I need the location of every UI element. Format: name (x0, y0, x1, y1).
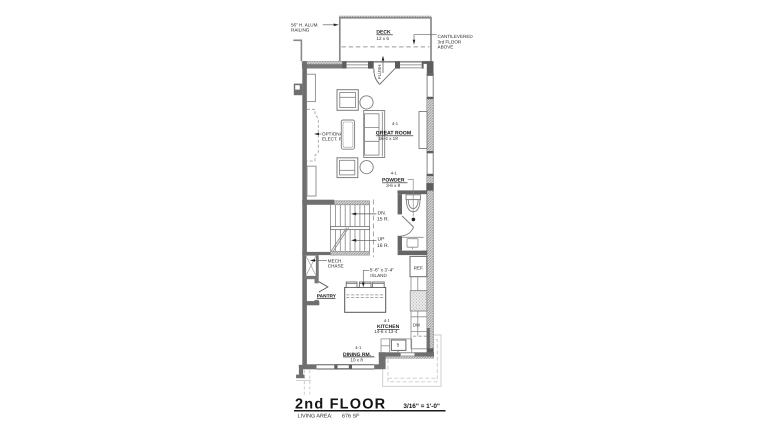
svg-text:4-1: 4-1 (384, 318, 391, 323)
svg-text:15 R.: 15 R. (377, 217, 389, 223)
svg-text:676 SF: 676 SF (342, 413, 360, 419)
svg-text:REF.: REF. (414, 265, 424, 270)
svg-text:LIVING AREA:: LIVING AREA: (298, 413, 333, 419)
svg-text:ABOVE: ABOVE (438, 44, 454, 49)
svg-text:CHASE: CHASE (328, 263, 344, 268)
svg-text:4-1: 4-1 (355, 345, 362, 350)
svg-text:RAILING: RAILING (291, 28, 310, 33)
svg-text:5: 5 (397, 342, 400, 348)
svg-text:14-6 x 13-4: 14-6 x 13-4 (374, 329, 398, 334)
svg-text:12 x 6: 12 x 6 (376, 36, 389, 41)
svg-text:FLUSH: FLUSH (377, 65, 382, 79)
svg-text:3/16" = 1'-0": 3/16" = 1'-0" (403, 403, 440, 410)
svg-text:DW: DW (413, 322, 421, 327)
svg-text:DN.: DN. (378, 210, 387, 216)
svg-text:16 R.: 16 R. (377, 243, 389, 249)
svg-text:4-1: 4-1 (392, 121, 399, 126)
svg-text:ISLAND: ISLAND (370, 273, 387, 278)
svg-text:3-6 x 8: 3-6 x 8 (386, 183, 400, 188)
svg-text:UP: UP (378, 237, 386, 243)
svg-text:4-1: 4-1 (391, 171, 398, 176)
svg-text:16-4 x 18: 16-4 x 18 (379, 136, 399, 141)
svg-text:10 x 8: 10 x 8 (350, 358, 363, 363)
